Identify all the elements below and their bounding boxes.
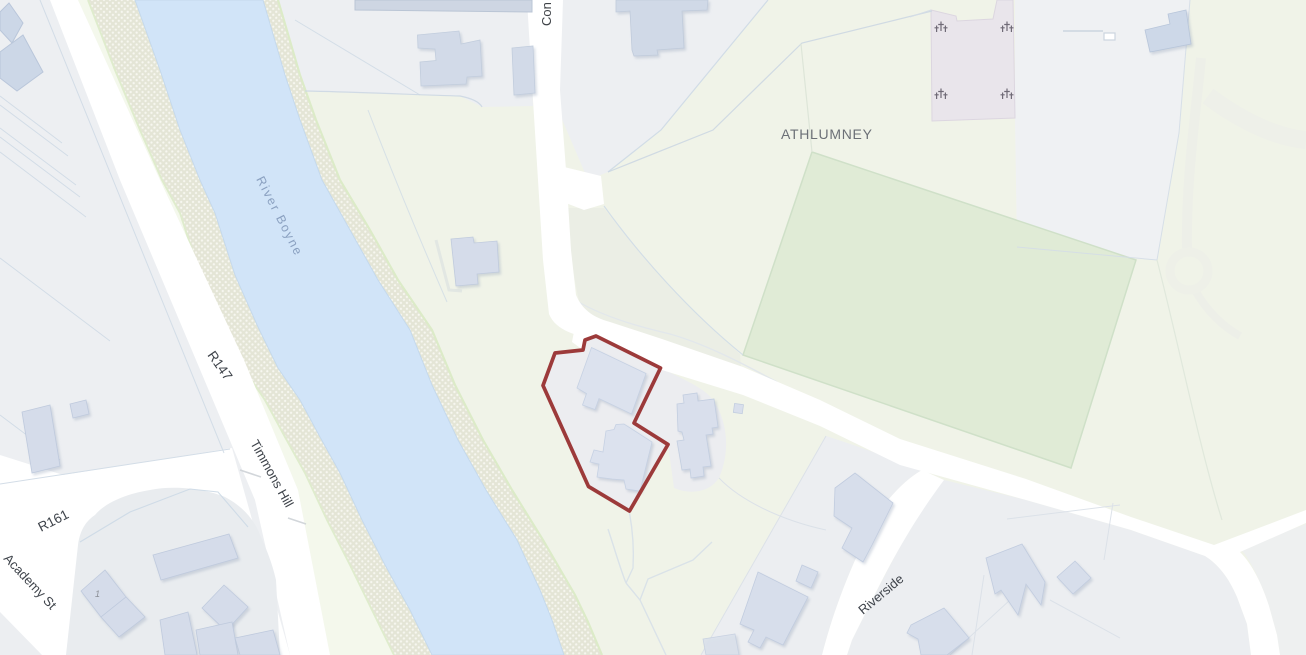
svg-text:ATHLUMNEY: ATHLUMNEY: [781, 126, 873, 142]
svg-text:1: 1: [95, 589, 100, 599]
svg-text:Con: Con: [539, 2, 554, 26]
